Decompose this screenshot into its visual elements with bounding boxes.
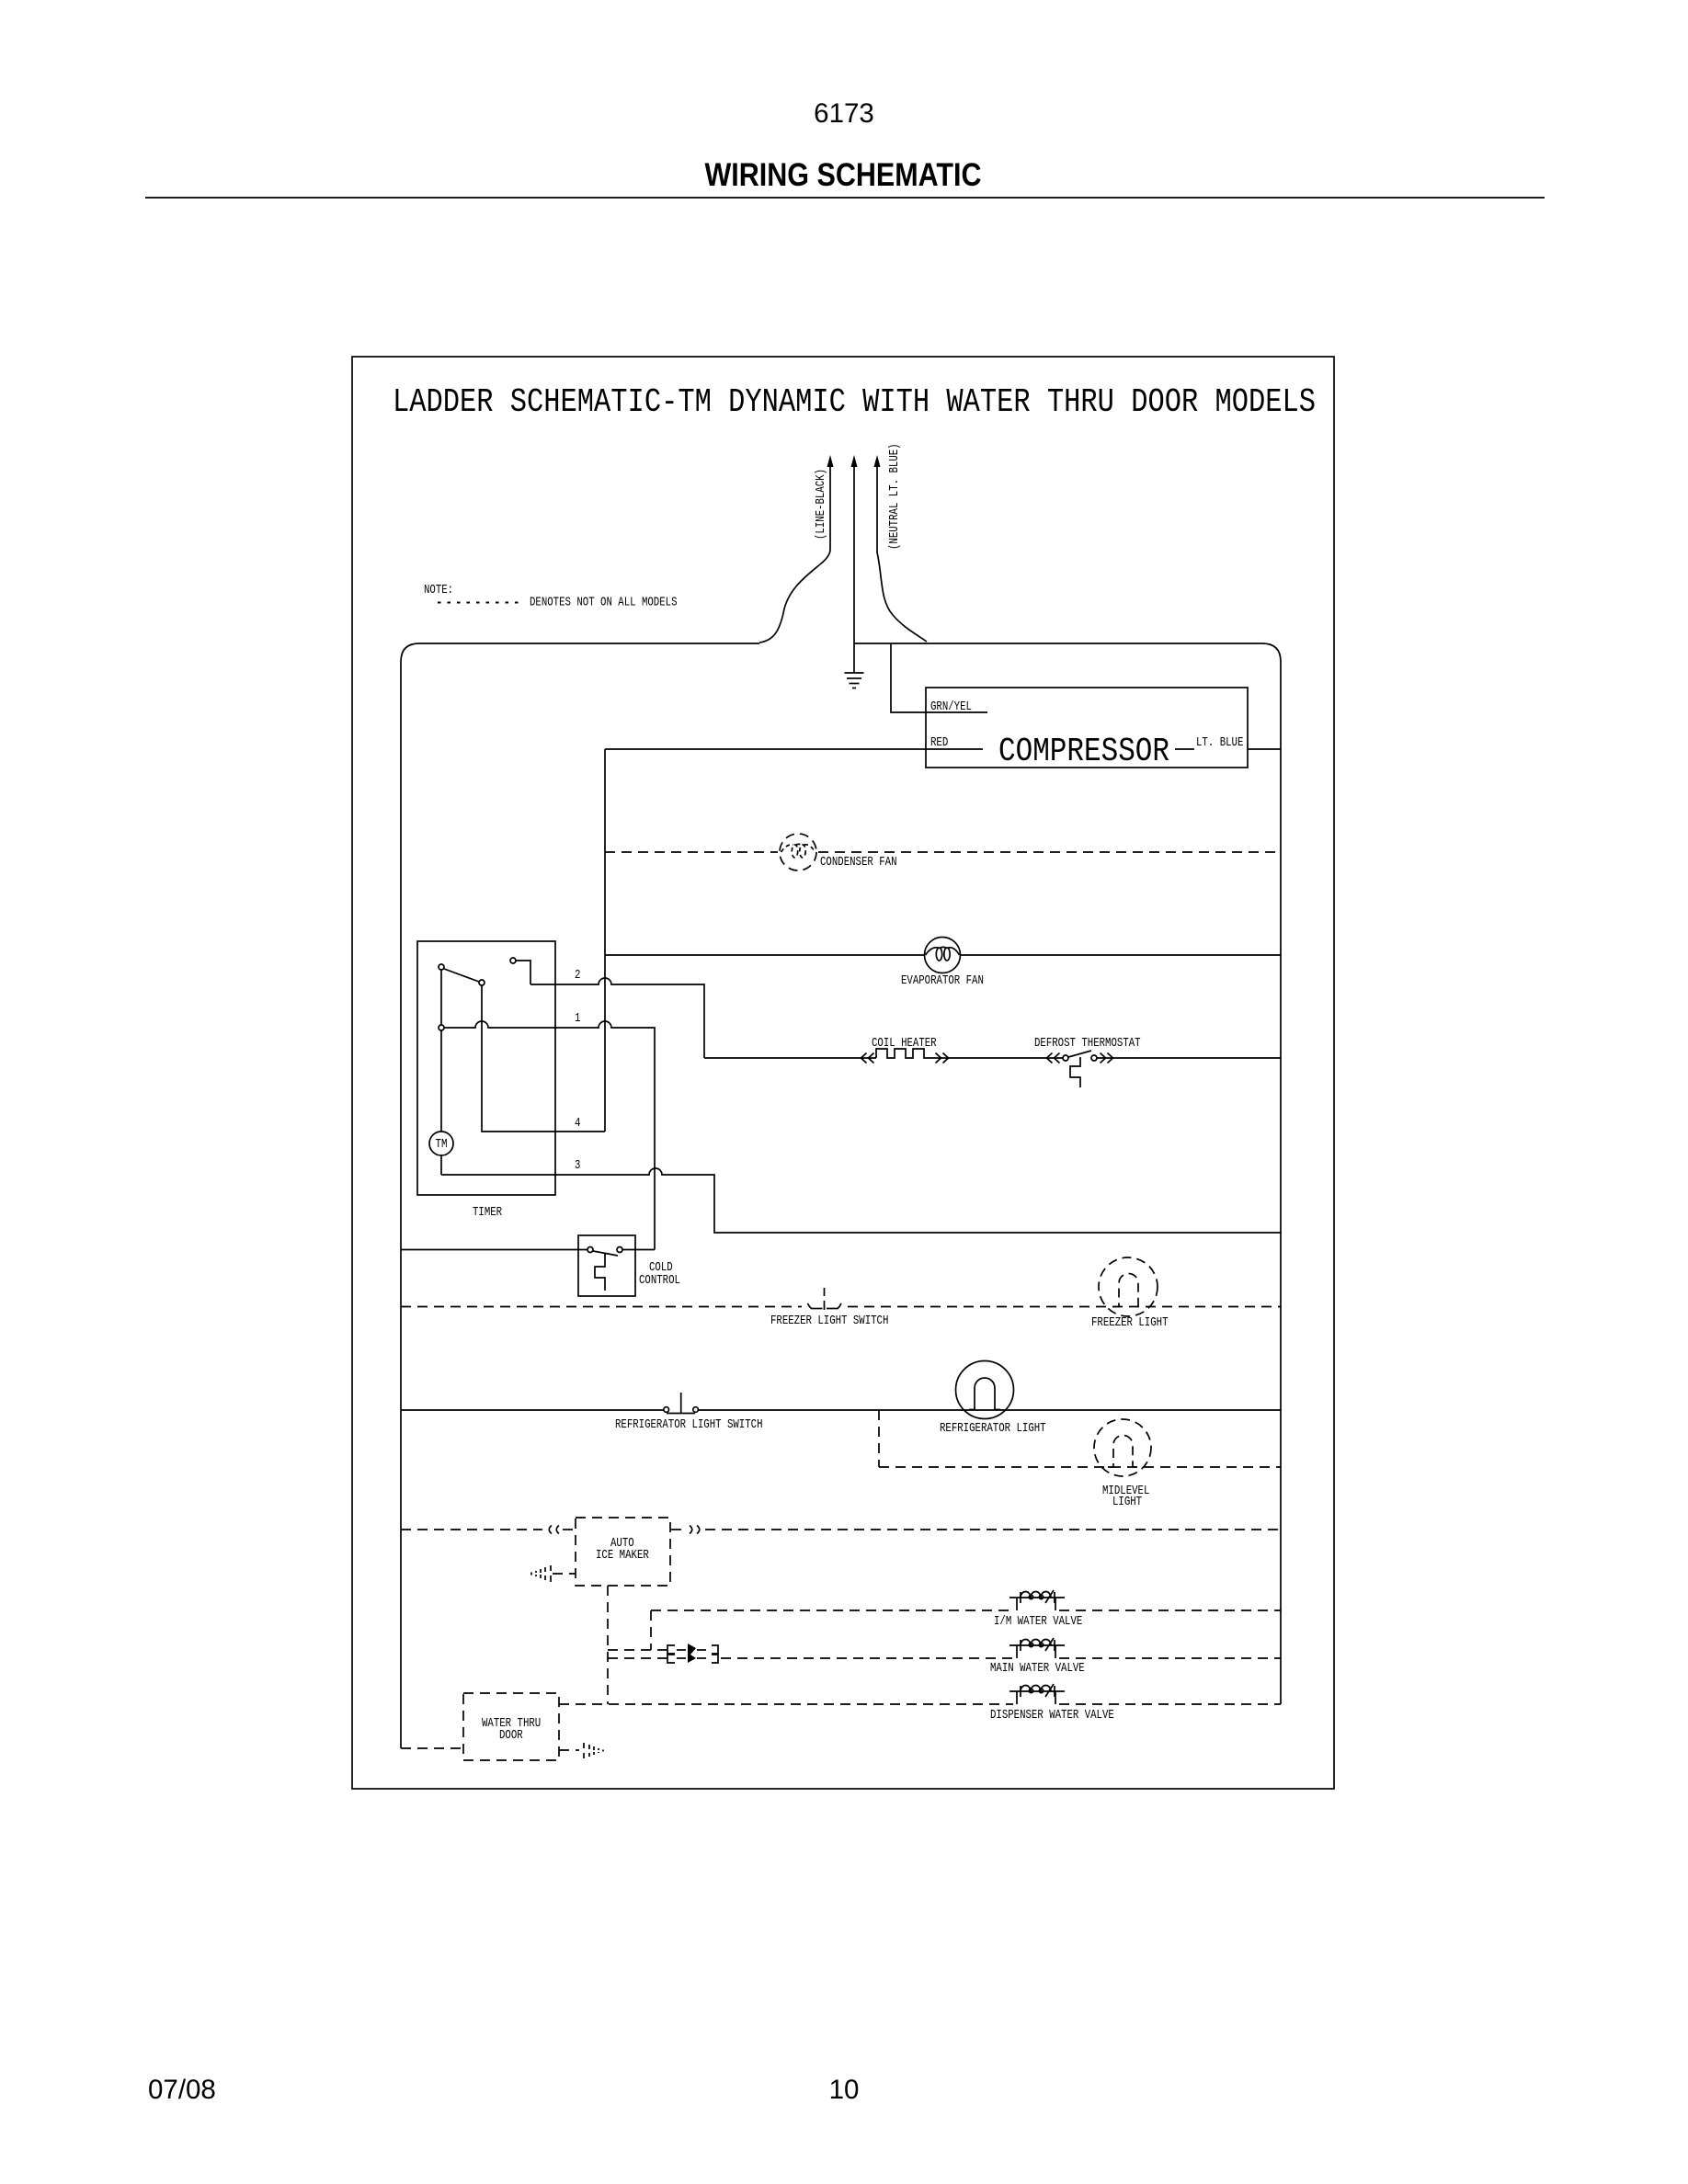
svg-text:FREEZER LIGHT SWITCH: FREEZER LIGHT SWITCH bbox=[770, 1314, 888, 1328]
svg-text:REFRIGERATOR LIGHT SWITCH: REFRIGERATOR LIGHT SWITCH bbox=[615, 1418, 763, 1432]
svg-text:TM: TM bbox=[436, 1138, 448, 1152]
svg-text:2: 2 bbox=[575, 969, 580, 983]
svg-text:LT. BLUE: LT. BLUE bbox=[1196, 736, 1243, 750]
svg-text:COLD: COLD bbox=[649, 1261, 673, 1275]
svg-text:MAIN WATER VALVE: MAIN WATER VALVE bbox=[990, 1662, 1085, 1676]
svg-text:4: 4 bbox=[575, 1117, 580, 1131]
svg-text:ICE MAKER: ICE MAKER bbox=[596, 1549, 649, 1563]
svg-text:DOOR: DOOR bbox=[499, 1729, 523, 1743]
svg-text:(NEUTRAL LT. BLUE): (NEUTRAL LT. BLUE) bbox=[888, 443, 902, 550]
svg-text:REFRIGERATOR LIGHT: REFRIGERATOR LIGHT bbox=[940, 1422, 1046, 1436]
svg-text:1: 1 bbox=[575, 1012, 580, 1026]
svg-text:RED: RED bbox=[930, 736, 948, 750]
svg-text:TIMER: TIMER bbox=[473, 1206, 502, 1220]
svg-text:NOTE:: NOTE: bbox=[424, 584, 453, 597]
svg-text:COIL HEATER: COIL HEATER bbox=[872, 1037, 937, 1051]
svg-text:LIGHT: LIGHT bbox=[1112, 1496, 1142, 1509]
svg-text:I/M WATER VALVE: I/M WATER VALVE bbox=[994, 1615, 1082, 1629]
svg-text:COMPRESSOR: COMPRESSOR bbox=[998, 733, 1169, 770]
svg-text:GRN/YEL: GRN/YEL bbox=[930, 700, 972, 714]
svg-text:(LINE-BLACK): (LINE-BLACK) bbox=[815, 469, 828, 540]
svg-text:CONDENSER FAN: CONDENSER FAN bbox=[820, 856, 897, 870]
svg-text:3: 3 bbox=[575, 1159, 580, 1173]
svg-text:DISPENSER WATER VALVE: DISPENSER WATER VALVE bbox=[990, 1709, 1114, 1723]
svg-text:EVAPORATOR FAN: EVAPORATOR FAN bbox=[901, 974, 984, 988]
svg-text:LADDER SCHEMATIC-TM DYNAMIC WI: LADDER SCHEMATIC-TM DYNAMIC WITH WATER T… bbox=[393, 383, 1316, 421]
svg-text:CONTROL: CONTROL bbox=[639, 1274, 680, 1288]
svg-text:FREEZER LIGHT: FREEZER LIGHT bbox=[1091, 1316, 1169, 1330]
svg-text:6173: 6173 bbox=[814, 98, 874, 129]
svg-text:10: 10 bbox=[829, 2075, 860, 2105]
svg-text:07/08: 07/08 bbox=[148, 2075, 216, 2105]
svg-text:WIRING SCHEMATIC: WIRING SCHEMATIC bbox=[705, 157, 982, 193]
svg-text:DENOTES NOT ON ALL MODELS: DENOTES NOT ON ALL MODELS bbox=[530, 597, 678, 610]
svg-text:DEFROST THERMOSTAT: DEFROST THERMOSTAT bbox=[1034, 1037, 1141, 1051]
